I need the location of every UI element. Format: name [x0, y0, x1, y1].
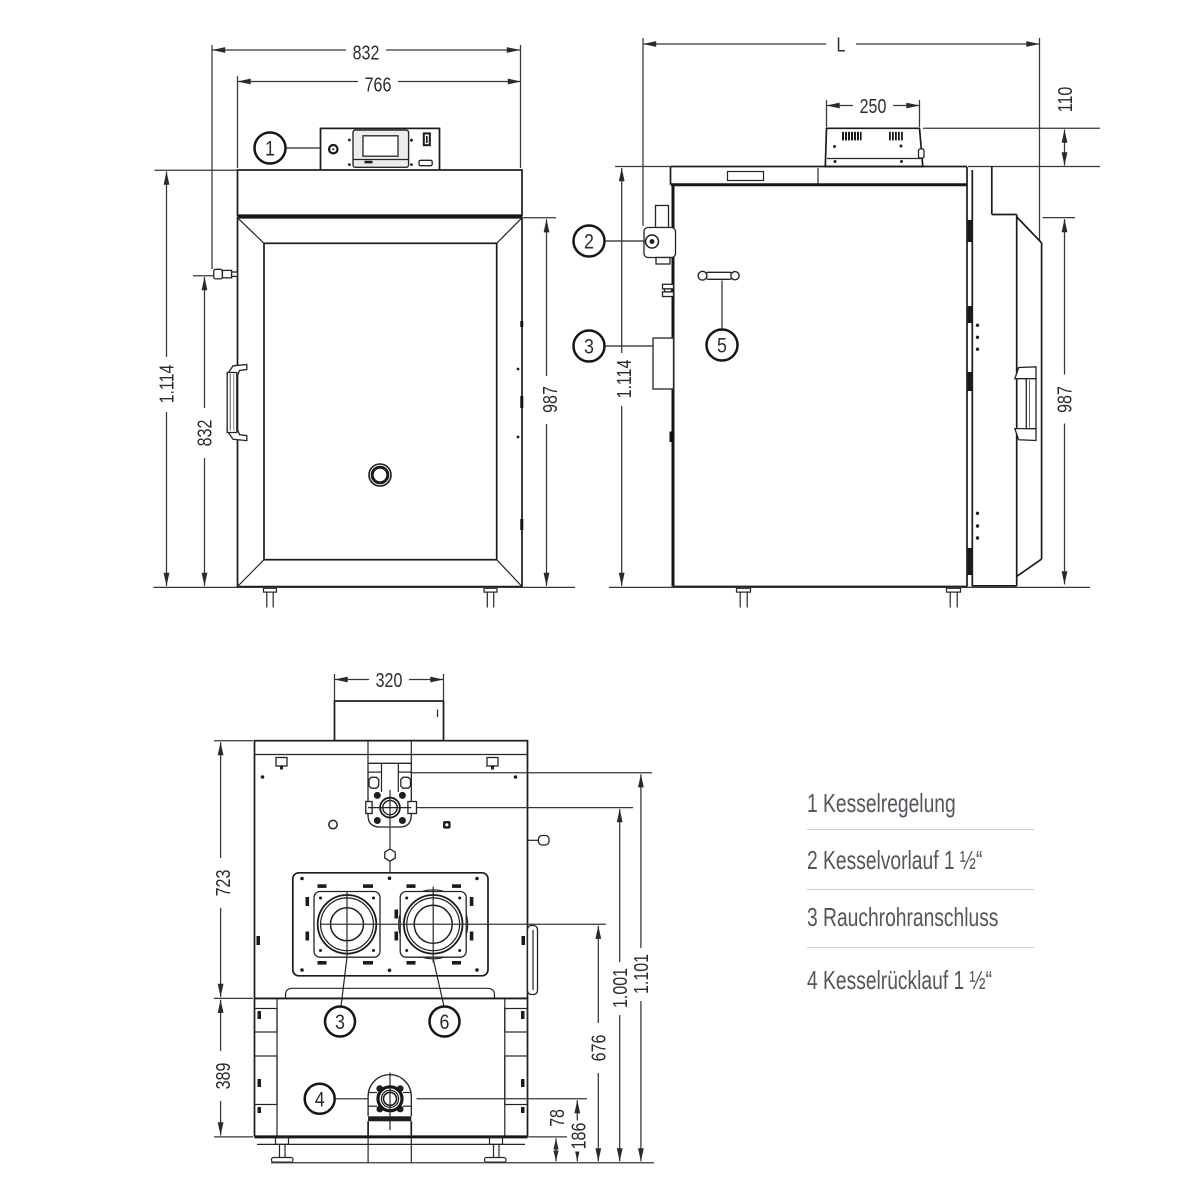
- svg-text:832: 832: [193, 420, 216, 447]
- svg-text:1.101: 1.101: [629, 954, 652, 994]
- svg-text:389: 389: [211, 1063, 234, 1090]
- svg-text:6: 6: [440, 1011, 450, 1035]
- svg-text:L: L: [837, 33, 846, 56]
- svg-text:1: 1: [265, 137, 275, 161]
- svg-text:987: 987: [1053, 386, 1076, 413]
- svg-text:186: 186: [567, 1123, 590, 1150]
- svg-text:832: 832: [353, 41, 380, 64]
- svg-text:723: 723: [211, 870, 234, 897]
- svg-text:766: 766: [365, 73, 392, 96]
- svg-text:987: 987: [538, 386, 561, 413]
- svg-text:4: 4: [315, 1088, 325, 1112]
- svg-text:320: 320: [376, 668, 403, 691]
- svg-text:2: 2: [584, 230, 594, 254]
- svg-text:250: 250: [860, 94, 887, 117]
- svg-text:3: 3: [335, 1011, 345, 1035]
- svg-text:5: 5: [717, 334, 727, 358]
- svg-text:1.001: 1.001: [608, 968, 631, 1008]
- svg-text:3: 3: [584, 335, 594, 359]
- svg-text:110: 110: [1053, 87, 1076, 112]
- svg-text:1.114: 1.114: [612, 360, 635, 399]
- svg-text:1.114: 1.114: [155, 365, 178, 404]
- svg-text:676: 676: [587, 1035, 610, 1062]
- svg-text:78: 78: [545, 1109, 568, 1127]
